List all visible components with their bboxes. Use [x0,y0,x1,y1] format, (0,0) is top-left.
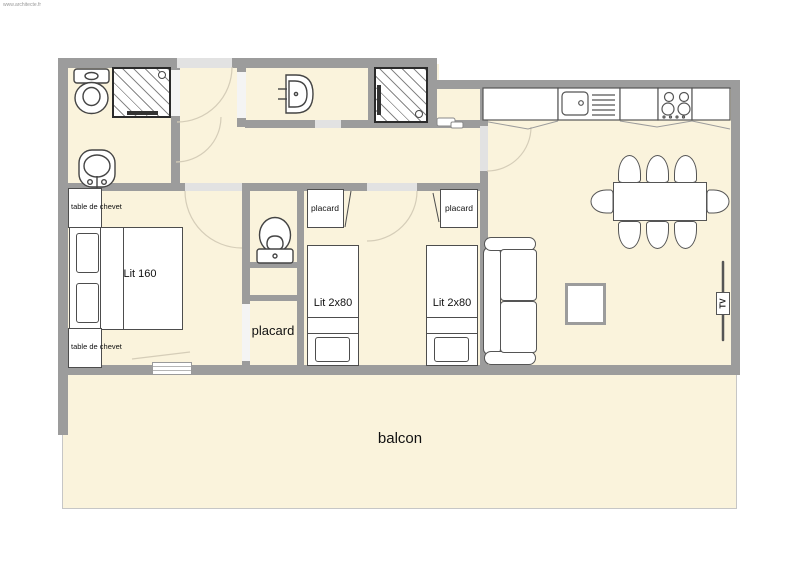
shower-icon [374,67,428,123]
tv-label: TV [718,298,727,308]
bathroom-door-arc [176,117,221,162]
kitchen-cabinet [620,88,658,120]
sofa-armrest [484,351,536,365]
floor-plan: www.architecte.fr balcon [0,0,800,573]
nook-sliding-door [437,118,463,128]
shower-icon [112,67,171,118]
wc-toilet-icon [257,218,293,264]
bed-line [427,333,477,334]
coffee-table [565,283,606,325]
master-bed-label: Lit 160 [105,268,175,280]
pillow [76,283,99,323]
bed-line [308,333,358,334]
kids-room-door-arc [367,191,417,241]
toilet-icon [74,69,109,114]
pillow [434,337,469,362]
nightstand-label: table de chevet [71,342,122,351]
kids-closet-label: placard [440,203,478,213]
washbasin-small-icon [278,75,313,113]
shower-drain-icon [415,110,423,118]
window [152,362,192,375]
washbasin-round-icon [79,150,115,188]
hall-closet-label: placard [249,323,297,338]
sofa-cushion [500,301,537,353]
shower-door-bar [127,111,158,115]
kitchen-cabinet [692,88,730,120]
shower-drain-icon [158,71,166,79]
window-swing-line [132,352,190,359]
bed-line [308,317,358,318]
pillow [76,233,99,273]
bed-line [100,228,101,329]
kitchen-cabinet [483,88,558,120]
living-door-arc [487,127,531,171]
shower-door-bar [377,85,381,115]
cabinet-door-marks [483,121,730,129]
kids-bed-label: Lit 2x80 [425,297,479,309]
kids-closet-label: placard [306,203,344,213]
sofa-back [483,247,501,355]
bed-line [427,317,477,318]
tv-label-box: TV [716,292,730,315]
pillow [315,337,350,362]
dining-table [613,182,707,221]
nightstand-label: table de chevet [71,202,122,211]
kids-bed-label: Lit 2x80 [306,297,360,309]
sofa-cushion [500,249,537,301]
master-bedroom-door-arc [185,191,242,248]
entry-door-arc [177,67,232,122]
closet-door-marks [345,191,439,227]
kitchen-counter [483,88,730,120]
